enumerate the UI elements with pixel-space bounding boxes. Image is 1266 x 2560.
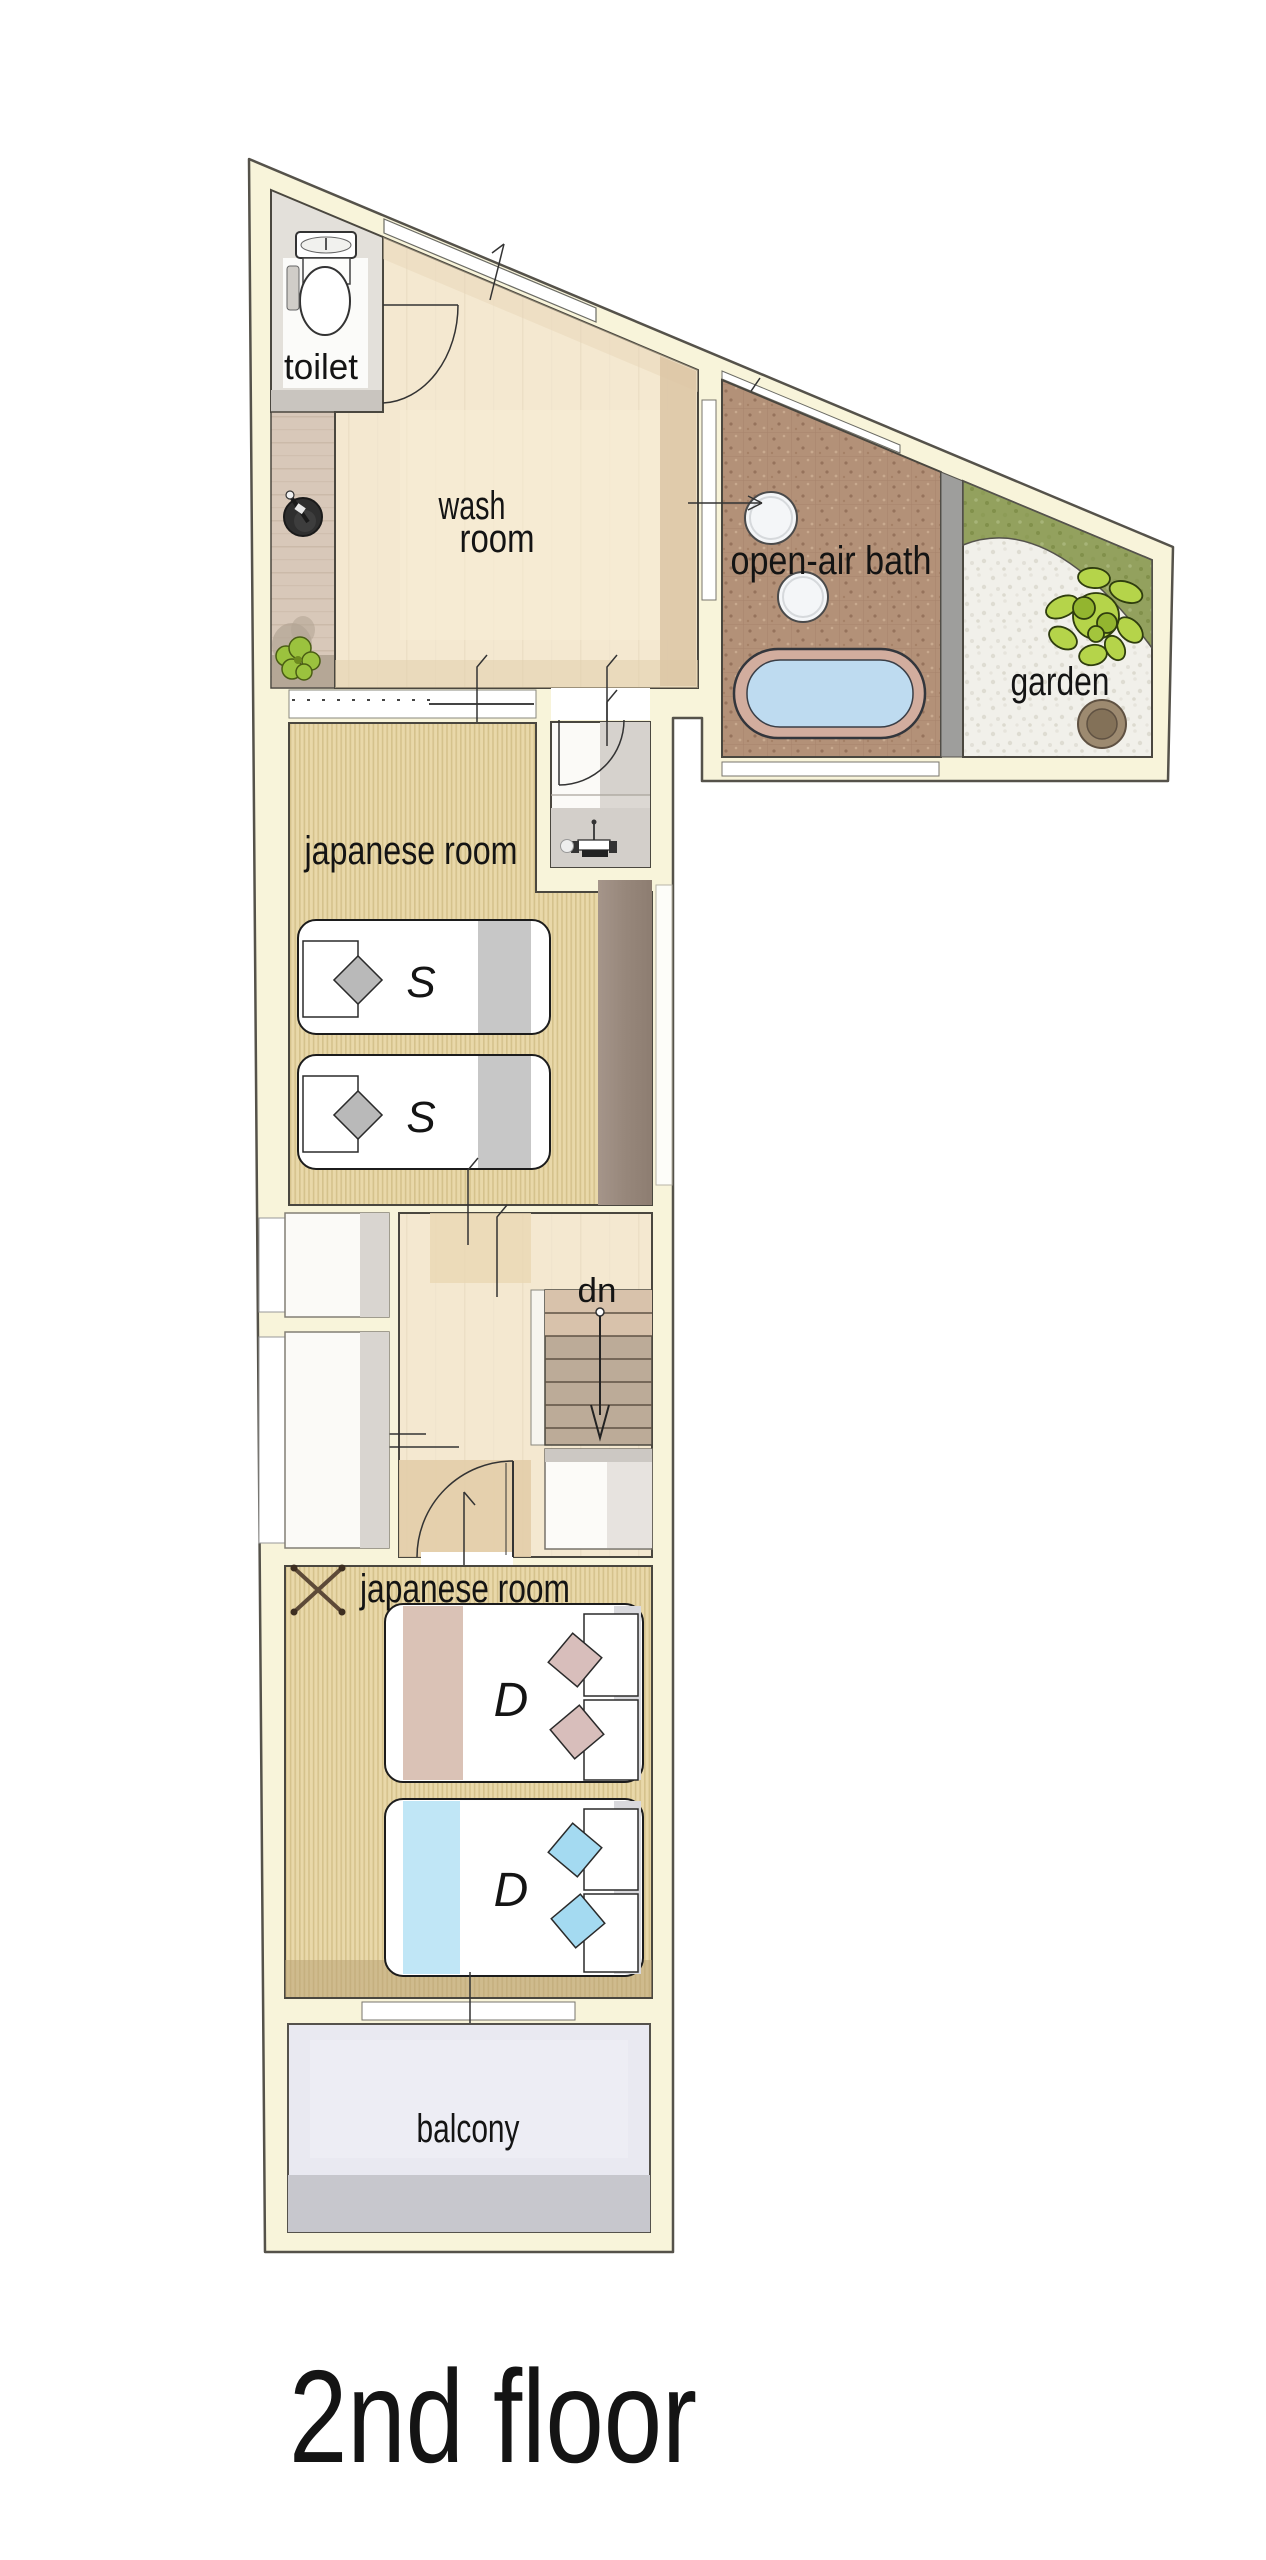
svg-text:room: room [460,517,535,561]
svg-text:D: D [494,1674,529,1727]
svg-text:2nd floor: 2nd floor [289,2343,697,2490]
svg-text:S: S [406,958,435,1007]
svg-text:garden: garden [1011,660,1110,704]
svg-text:D: D [494,1864,529,1917]
svg-text:japanese room: japanese room [304,829,518,873]
svg-text:open-air bath: open-air bath [731,539,932,583]
svg-text:toilet: toilet [284,346,358,387]
svg-text:dn: dn [578,1272,617,1310]
svg-text:balcony: balcony [417,2107,520,2151]
svg-text:S: S [406,1093,435,1142]
